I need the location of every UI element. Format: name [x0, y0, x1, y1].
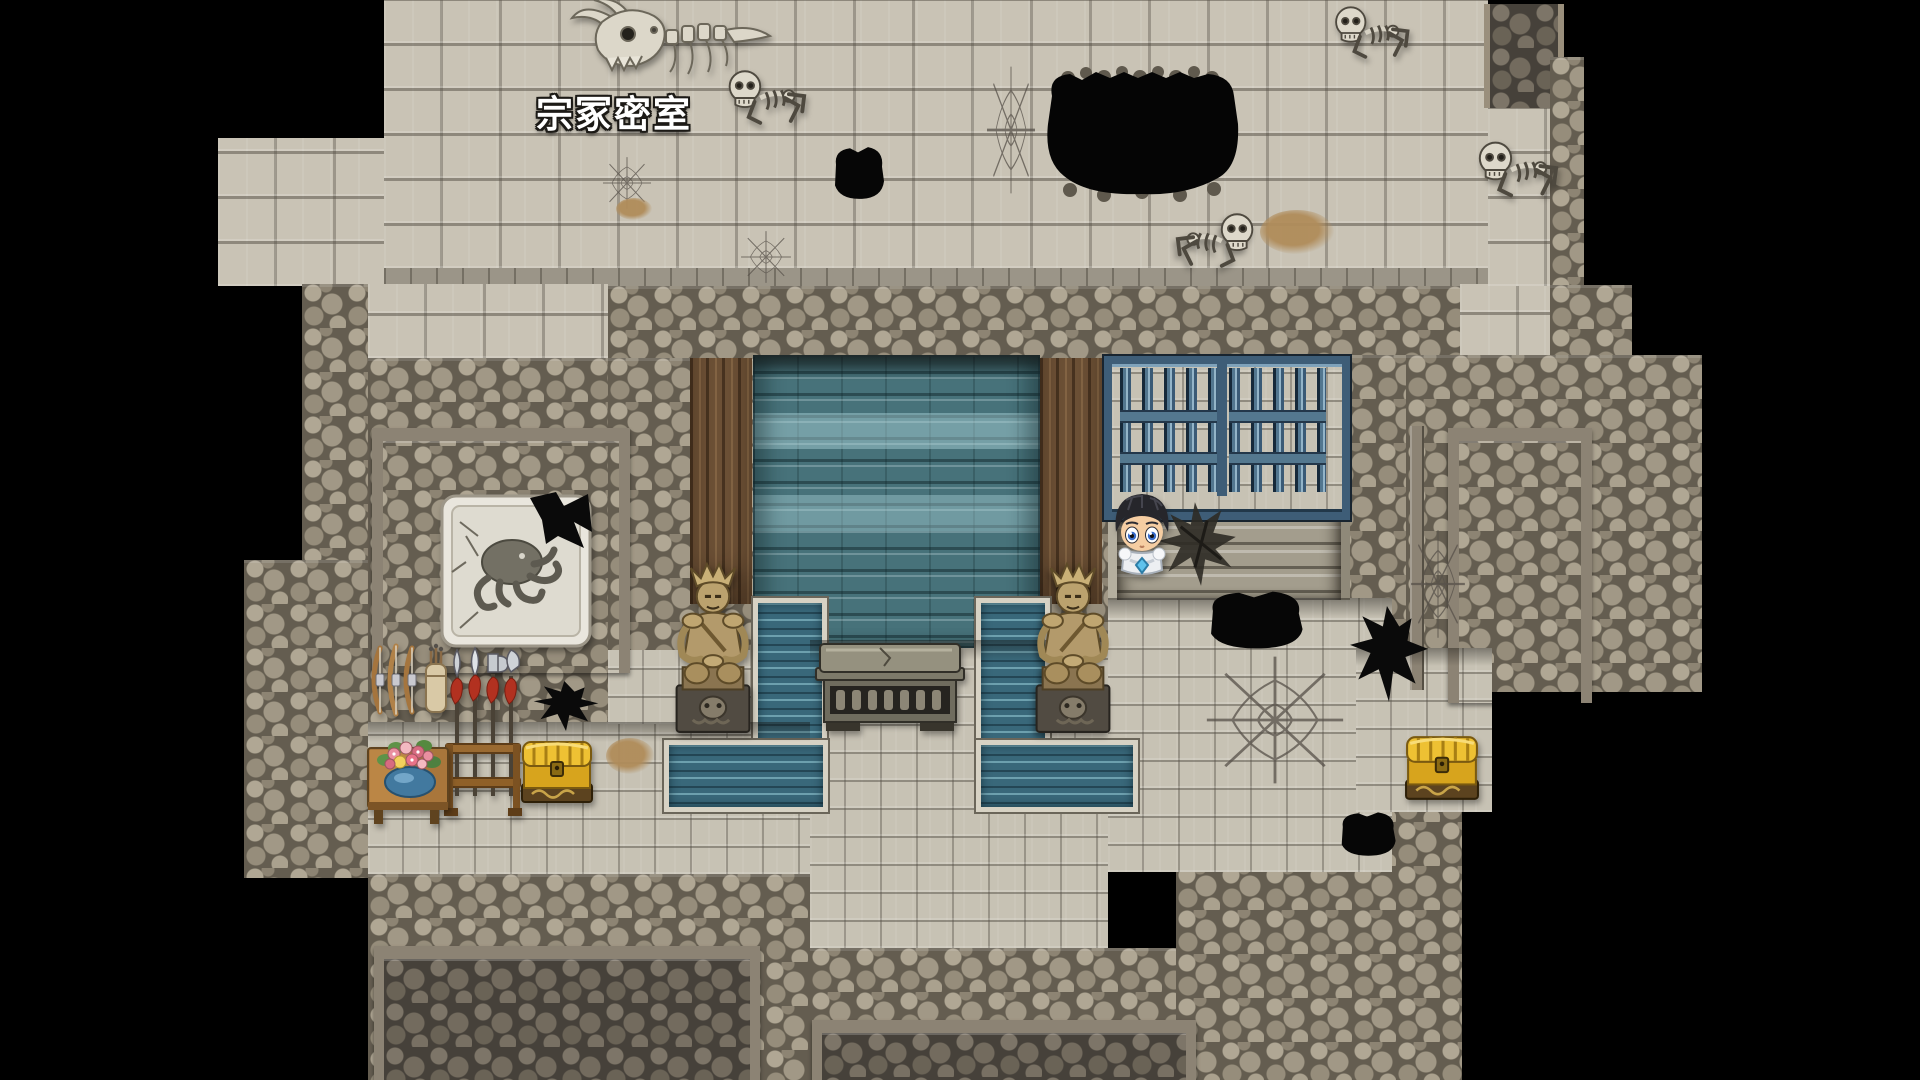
bottom-niche-left	[374, 946, 760, 1080]
wall-top-band	[608, 286, 1460, 358]
bow-display-rack	[368, 642, 450, 722]
treasure-chest-left[interactable]	[520, 738, 594, 806]
floor-hole-top	[828, 142, 888, 204]
crack-web-2	[1204, 654, 1346, 786]
flower-table	[366, 726, 450, 830]
wall-niche-frame-right	[1448, 428, 1592, 703]
stone-sarcophagus	[810, 642, 970, 734]
crack-web-1	[986, 64, 1036, 196]
treasure-chest-right[interactable]	[1404, 732, 1480, 804]
skeleton-crawler-3	[1472, 128, 1560, 212]
water-channel-right-h	[976, 740, 1138, 812]
spear-weapon-rack	[444, 646, 522, 822]
bottom-niche-center	[812, 1020, 1196, 1080]
floor-hole-bottom	[1334, 808, 1400, 860]
gate-bars-left	[1120, 368, 1217, 492]
dirt-patch-3	[616, 198, 652, 220]
player-character	[1110, 486, 1174, 578]
floor-upper-left-step	[368, 284, 608, 358]
floor-chasm-large	[1034, 62, 1252, 206]
wall-crack	[1410, 528, 1466, 640]
wall-left-outer-low	[244, 560, 370, 878]
floor-hole-oval	[1198, 586, 1310, 654]
gate-bars-right	[1229, 368, 1326, 492]
wall-top-right-stub	[1550, 285, 1632, 357]
guardian-statue-left	[660, 558, 766, 738]
dirt-patch-2	[606, 738, 654, 774]
game-viewport: 宗冢密室	[0, 0, 1920, 1080]
skeleton-crawler-4	[1174, 202, 1260, 280]
floor-upper-right-step	[1460, 284, 1550, 357]
floor-top-left-ext	[218, 138, 384, 286]
crack-web-3	[740, 230, 792, 284]
water-channel-left-h	[664, 740, 828, 812]
gate-center-post	[1217, 364, 1227, 496]
broken-relief-tablet	[438, 492, 594, 654]
guardian-statue-right	[1020, 558, 1126, 738]
skeleton-crawler-2	[1326, 0, 1414, 66]
map-name-label: 宗冢密室	[536, 84, 692, 138]
skeleton-crawler-1	[722, 58, 808, 138]
wall-hole-jagged-left	[532, 680, 600, 732]
dirt-patch-1	[1260, 210, 1334, 254]
